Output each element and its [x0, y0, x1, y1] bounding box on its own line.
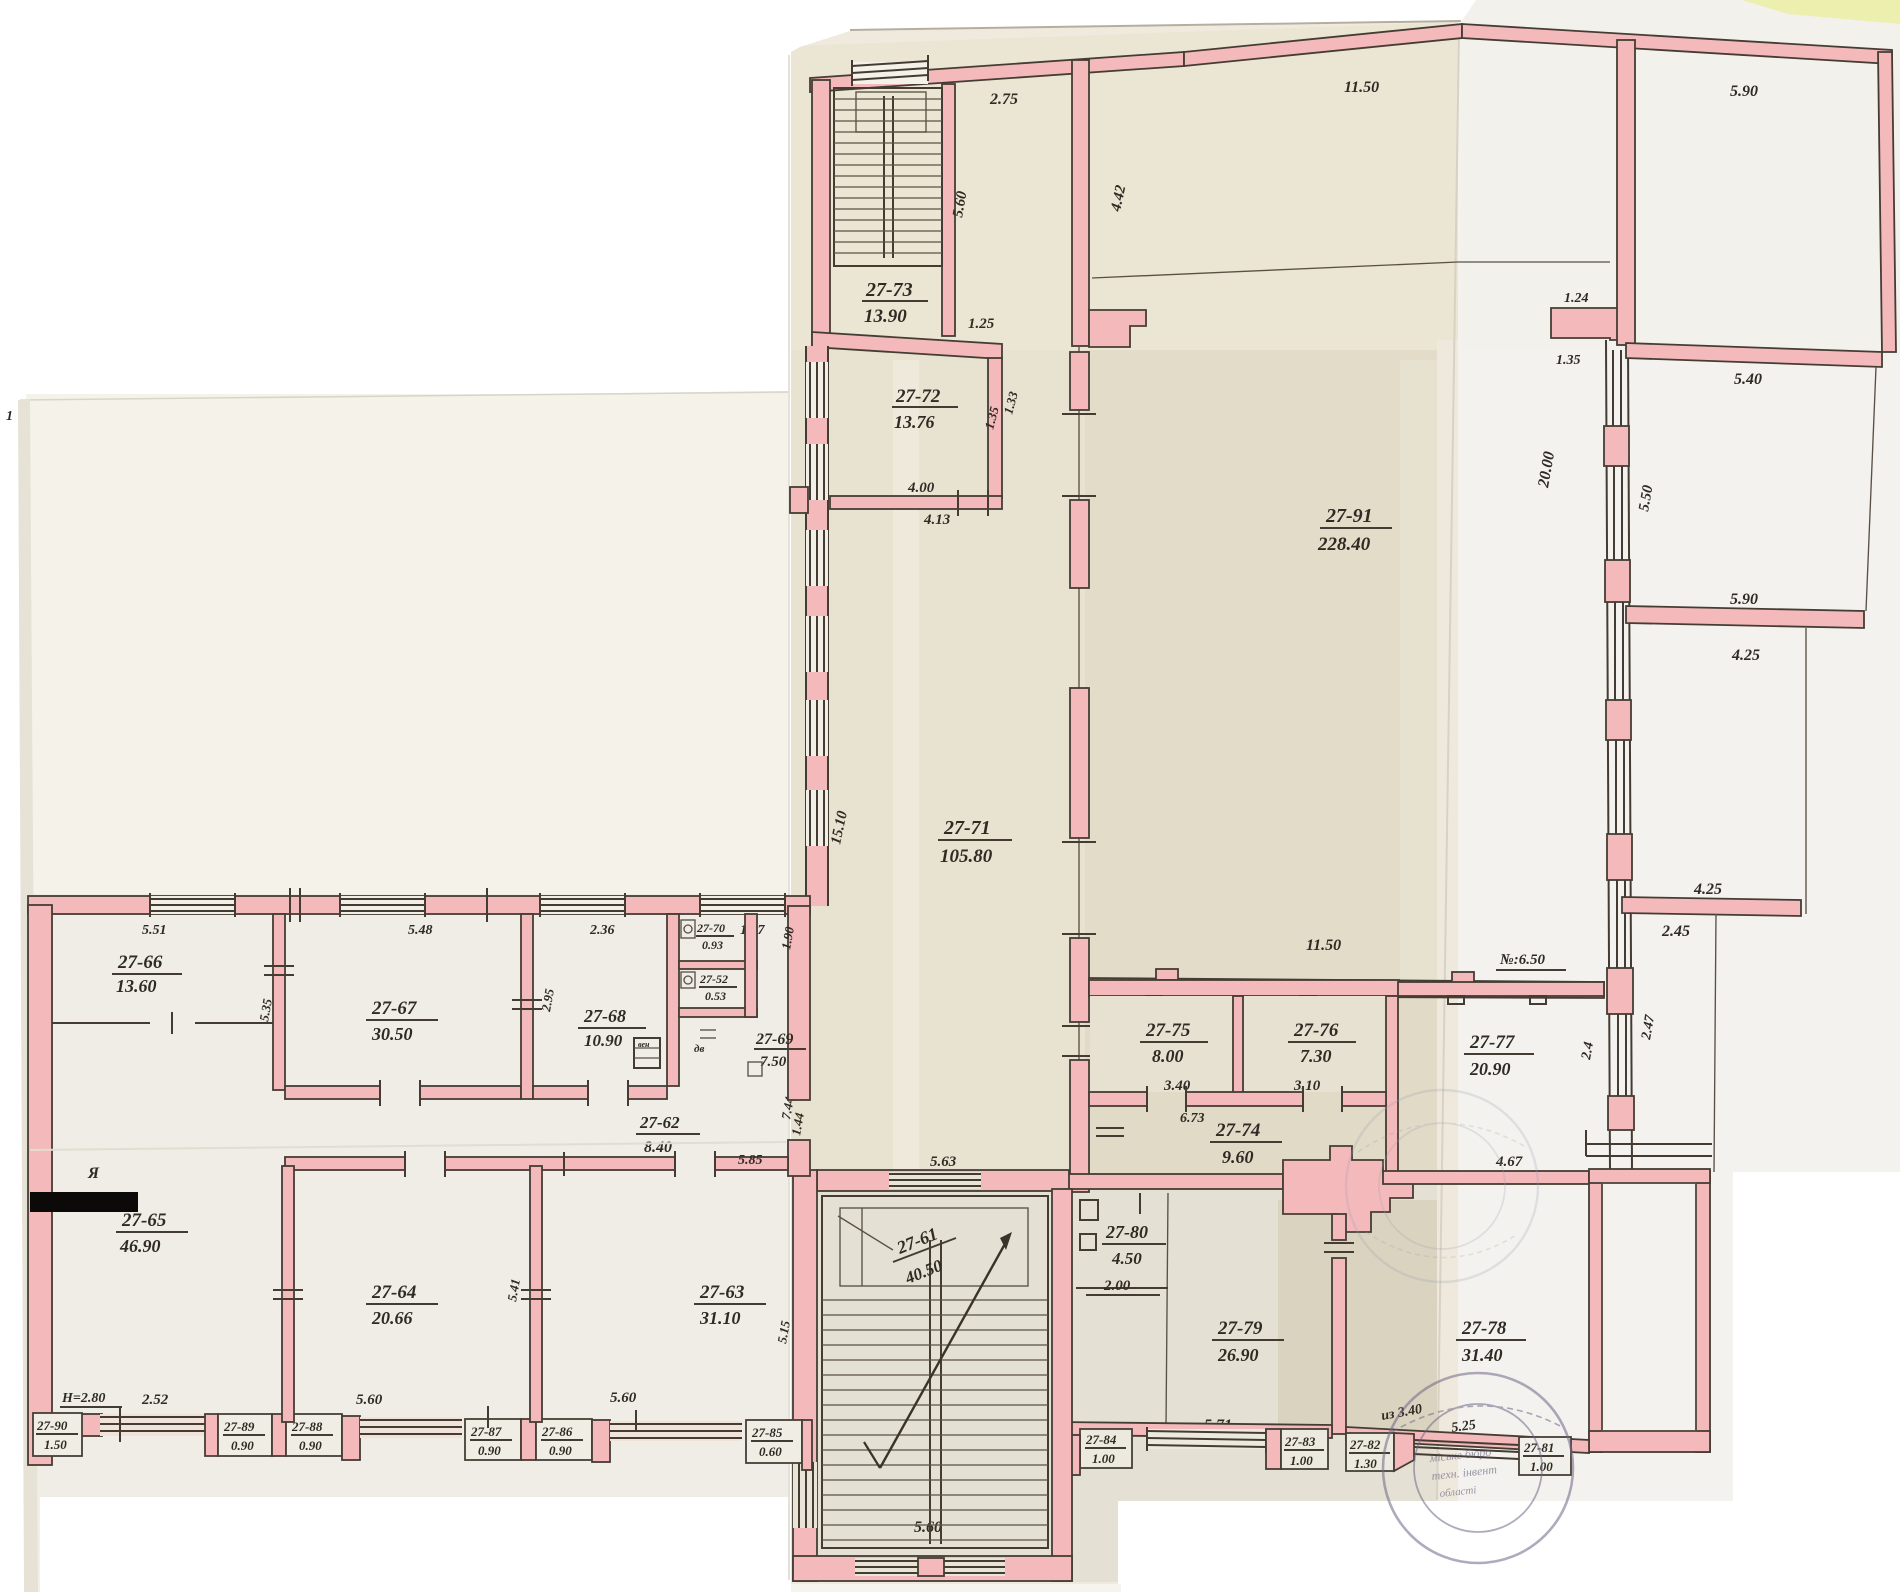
svg-text:27-62: 27-62	[639, 1113, 680, 1132]
svg-text:5.40: 5.40	[1734, 371, 1762, 388]
svg-text:1.35: 1.35	[1556, 353, 1581, 368]
svg-text:2.75: 2.75	[989, 91, 1018, 108]
svg-text:1.00: 1.00	[1290, 1453, 1313, 1468]
svg-text:№:6.50: №:6.50	[1499, 952, 1545, 968]
svg-text:13.90: 13.90	[864, 306, 907, 327]
svg-text:27-68: 27-68	[583, 1006, 626, 1026]
svg-text:1.50: 1.50	[44, 1437, 67, 1452]
svg-text:27-71: 27-71	[943, 817, 991, 839]
svg-text:27-78: 27-78	[1461, 1318, 1507, 1339]
svg-text:27-67: 27-67	[371, 998, 418, 1019]
svg-text:0.53: 0.53	[705, 989, 726, 1003]
svg-text:27-82: 27-82	[1349, 1437, 1381, 1452]
svg-text:7.50: 7.50	[760, 1054, 787, 1070]
svg-text:27-69: 27-69	[755, 1031, 793, 1048]
svg-text:1.24: 1.24	[1564, 291, 1589, 306]
svg-text:27-52: 27-52	[699, 972, 728, 986]
svg-text:27-77: 27-77	[1469, 1032, 1516, 1053]
svg-text:27-85: 27-85	[751, 1425, 783, 1440]
svg-text:27-73: 27-73	[865, 279, 913, 301]
svg-text:27-90: 27-90	[36, 1418, 68, 1433]
svg-text:27-75: 27-75	[1145, 1020, 1191, 1041]
svg-text:27-64: 27-64	[371, 1282, 416, 1303]
svg-text:20.90: 20.90	[1469, 1059, 1511, 1079]
svg-text:2.52: 2.52	[141, 1392, 169, 1408]
svg-text:20.66: 20.66	[371, 1308, 413, 1328]
svg-text:Я: Я	[87, 1165, 100, 1182]
svg-text:0.90: 0.90	[549, 1443, 572, 1458]
svg-text:2.4: 2.4	[1579, 1041, 1597, 1062]
svg-text:11.50: 11.50	[1306, 937, 1341, 954]
svg-text:26.90: 26.90	[1217, 1345, 1259, 1365]
svg-text:Н=2.80: Н=2.80	[61, 1391, 105, 1406]
svg-text:вен: вен	[638, 1040, 650, 1049]
svg-text:5.60: 5.60	[610, 1390, 637, 1406]
svg-text:9.60: 9.60	[1222, 1147, 1254, 1167]
svg-text:30.50: 30.50	[371, 1024, 413, 1044]
svg-text:7.30: 7.30	[1300, 1046, 1332, 1066]
svg-text:27-83: 27-83	[1284, 1434, 1316, 1449]
svg-text:27-86: 27-86	[541, 1424, 573, 1439]
svg-text:8.40: 8.40	[644, 1139, 672, 1156]
svg-text:5.90: 5.90	[1730, 83, 1758, 100]
svg-text:1.00: 1.00	[1092, 1451, 1115, 1466]
svg-text:27-89: 27-89	[223, 1419, 255, 1434]
svg-text:0.90: 0.90	[299, 1438, 322, 1453]
svg-text:27-74: 27-74	[1215, 1120, 1260, 1141]
svg-text:27-91: 27-91	[1325, 505, 1373, 527]
svg-text:5.51: 5.51	[142, 923, 167, 938]
svg-text:5.63: 5.63	[930, 1154, 957, 1170]
svg-text:13.60: 13.60	[116, 976, 157, 996]
svg-text:4.25: 4.25	[1693, 881, 1722, 898]
svg-text:46.90: 46.90	[119, 1236, 161, 1256]
svg-text:дв: дв	[694, 1043, 704, 1055]
svg-text:4.50: 4.50	[1111, 1249, 1142, 1268]
svg-text:11.50: 11.50	[1344, 79, 1379, 96]
svg-text:105.80: 105.80	[940, 846, 993, 867]
svg-text:2.45: 2.45	[1661, 923, 1690, 940]
svg-text:27-87: 27-87	[470, 1424, 502, 1439]
svg-text:27-76: 27-76	[1293, 1020, 1339, 1041]
svg-text:4.00: 4.00	[907, 480, 935, 496]
svg-text:1.25: 1.25	[968, 316, 995, 332]
svg-text:4.25: 4.25	[1731, 647, 1760, 664]
svg-text:5.48: 5.48	[408, 923, 433, 938]
svg-text:0.90: 0.90	[478, 1443, 501, 1458]
svg-text:2.36: 2.36	[589, 923, 615, 938]
svg-text:27-88: 27-88	[291, 1419, 323, 1434]
svg-text:1: 1	[6, 409, 13, 424]
svg-text:6.73: 6.73	[1180, 1111, 1205, 1126]
svg-text:0.93: 0.93	[702, 938, 723, 952]
svg-text:5.90: 5.90	[1730, 591, 1758, 608]
svg-text:27-79: 27-79	[1217, 1318, 1263, 1339]
svg-text:228.40: 228.40	[1317, 534, 1371, 555]
svg-text:10.90: 10.90	[584, 1031, 623, 1050]
svg-text:0.90: 0.90	[231, 1438, 254, 1453]
svg-text:31.10: 31.10	[699, 1308, 741, 1328]
svg-text:27-72: 27-72	[895, 386, 941, 407]
svg-text:4.67: 4.67	[1495, 1154, 1523, 1170]
svg-text:13.76: 13.76	[894, 412, 935, 432]
svg-text:27-66: 27-66	[117, 952, 163, 973]
svg-text:2.00: 2.00	[1103, 1278, 1131, 1294]
svg-text:1.30: 1.30	[1354, 1456, 1377, 1471]
svg-text:31.40: 31.40	[1461, 1345, 1503, 1365]
svg-text:0.60: 0.60	[759, 1444, 782, 1459]
svg-text:8.00: 8.00	[1152, 1046, 1184, 1066]
svg-text:5.60: 5.60	[356, 1392, 383, 1408]
svg-text:27-70: 27-70	[696, 921, 725, 935]
svg-text:27-84: 27-84	[1085, 1432, 1117, 1447]
svg-text:4.13: 4.13	[923, 512, 951, 528]
svg-text:5.85: 5.85	[738, 1153, 763, 1168]
svg-text:5.60: 5.60	[914, 1519, 942, 1536]
svg-text:27-63: 27-63	[699, 1282, 744, 1303]
svg-text:27-80: 27-80	[1105, 1222, 1148, 1242]
svg-text:27-65: 27-65	[121, 1210, 167, 1231]
